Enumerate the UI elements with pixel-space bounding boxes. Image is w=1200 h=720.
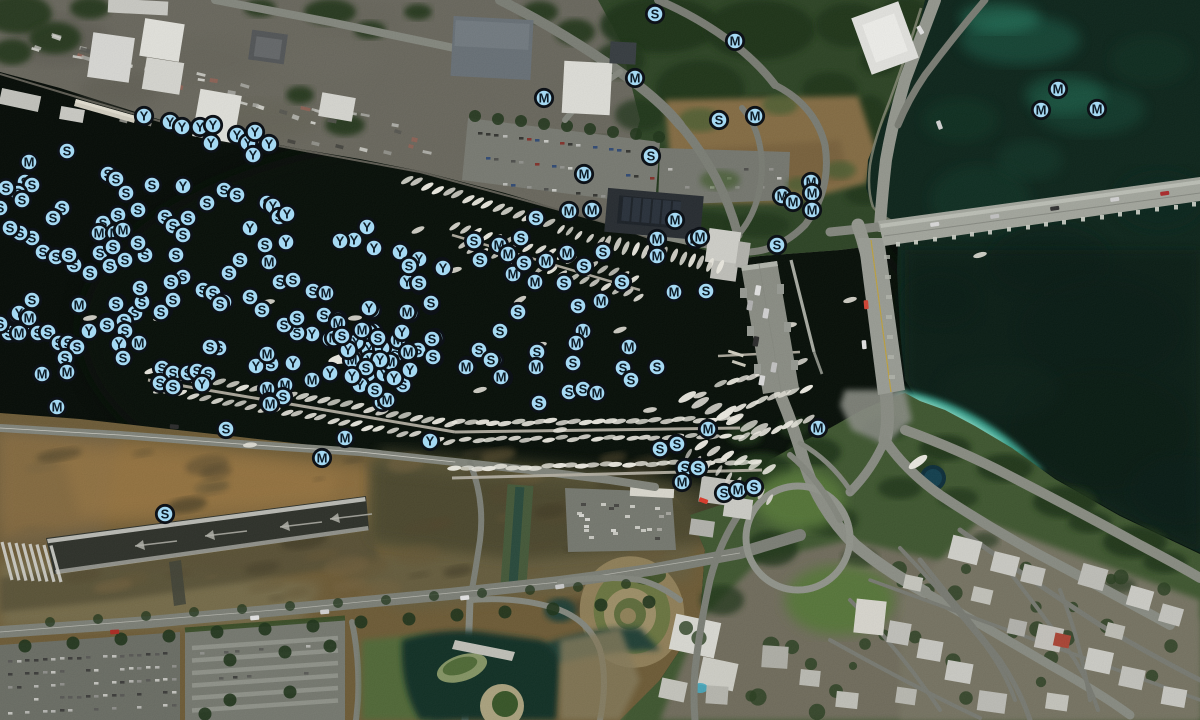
svg-text:Y: Y: [365, 301, 374, 316]
svg-text:S: S: [647, 149, 656, 164]
svg-text:S: S: [580, 259, 589, 274]
svg-text:Y: Y: [140, 109, 149, 124]
svg-text:M: M: [134, 336, 145, 351]
svg-text:S: S: [720, 486, 729, 501]
svg-text:M: M: [750, 109, 761, 124]
svg-text:M: M: [652, 249, 663, 264]
svg-text:Y: Y: [209, 118, 218, 133]
svg-text:M: M: [357, 323, 368, 338]
svg-text:M: M: [496, 370, 507, 385]
svg-text:Y: Y: [282, 235, 291, 250]
svg-text:S: S: [702, 284, 711, 299]
svg-text:S: S: [28, 178, 37, 193]
svg-text:Y: Y: [207, 136, 216, 151]
svg-text:M: M: [564, 204, 575, 219]
svg-text:S: S: [560, 276, 569, 291]
svg-text:M: M: [461, 360, 472, 375]
svg-text:S: S: [216, 297, 225, 312]
svg-text:M: M: [670, 213, 681, 228]
svg-text:S: S: [574, 299, 583, 314]
svg-text:M: M: [14, 326, 25, 341]
svg-text:M: M: [1036, 103, 1047, 118]
svg-text:M: M: [579, 167, 590, 182]
svg-text:S: S: [246, 290, 255, 305]
svg-text:M: M: [677, 475, 688, 490]
svg-text:S: S: [535, 396, 544, 411]
svg-text:S: S: [236, 253, 245, 268]
svg-text:M: M: [562, 246, 573, 261]
svg-text:Y: Y: [426, 434, 435, 449]
svg-text:S: S: [233, 188, 242, 203]
svg-text:S: S: [206, 340, 215, 355]
svg-text:Y: Y: [251, 125, 260, 140]
svg-text:S: S: [2, 181, 11, 196]
svg-text:S: S: [119, 351, 128, 366]
svg-text:Y: Y: [289, 356, 298, 371]
svg-text:S: S: [470, 234, 479, 249]
svg-text:S: S: [599, 245, 608, 260]
svg-text:M: M: [813, 421, 824, 436]
svg-text:Y: Y: [246, 221, 255, 236]
svg-text:M: M: [317, 451, 328, 466]
svg-text:S: S: [258, 303, 267, 318]
svg-text:M: M: [62, 365, 73, 380]
svg-text:S: S: [362, 361, 371, 376]
svg-text:S: S: [673, 437, 682, 452]
svg-text:S: S: [715, 113, 724, 128]
svg-text:S: S: [618, 275, 627, 290]
svg-text:M: M: [402, 305, 413, 320]
svg-text:Y: Y: [370, 241, 379, 256]
svg-text:S: S: [520, 256, 529, 271]
svg-text:S: S: [134, 203, 143, 218]
svg-text:S: S: [565, 385, 574, 400]
svg-text:S: S: [157, 305, 166, 320]
svg-text:Y: Y: [308, 327, 317, 342]
svg-text:S: S: [415, 276, 424, 291]
svg-text:Y: Y: [406, 363, 415, 378]
svg-text:M: M: [340, 431, 351, 446]
svg-text:M: M: [262, 347, 273, 362]
svg-text:S: S: [179, 228, 188, 243]
svg-text:S: S: [222, 422, 231, 437]
svg-text:S: S: [496, 324, 505, 339]
svg-text:Y: Y: [348, 369, 357, 384]
svg-text:S: S: [320, 308, 329, 323]
svg-text:M: M: [24, 311, 35, 326]
svg-text:S: S: [172, 248, 181, 263]
svg-text:S: S: [289, 273, 298, 288]
svg-text:S: S: [429, 350, 438, 365]
svg-text:S: S: [338, 329, 347, 344]
svg-text:S: S: [169, 293, 178, 308]
svg-text:S: S: [112, 172, 121, 187]
svg-text:M: M: [695, 230, 706, 245]
svg-text:S: S: [86, 266, 95, 281]
svg-text:M: M: [265, 397, 276, 412]
svg-text:M: M: [807, 186, 818, 201]
svg-text:S: S: [579, 382, 588, 397]
svg-text:S: S: [18, 193, 27, 208]
svg-text:Y: Y: [178, 120, 187, 135]
svg-text:S: S: [569, 356, 578, 371]
svg-text:M: M: [652, 232, 663, 247]
svg-text:Y: Y: [326, 366, 335, 381]
svg-text:S: S: [73, 340, 82, 355]
svg-text:M: M: [807, 203, 818, 218]
svg-text:M: M: [531, 360, 542, 375]
svg-text:S: S: [161, 507, 170, 522]
svg-text:Y: Y: [265, 137, 274, 152]
svg-text:S: S: [148, 178, 157, 193]
svg-text:S: S: [136, 281, 145, 296]
svg-text:S: S: [121, 253, 130, 268]
svg-text:S: S: [487, 353, 496, 368]
svg-text:S: S: [122, 186, 131, 201]
svg-text:M: M: [539, 91, 550, 106]
svg-text:M: M: [596, 294, 607, 309]
svg-text:S: S: [374, 331, 383, 346]
svg-text:S: S: [103, 318, 112, 333]
svg-text:M: M: [669, 285, 680, 300]
svg-text:Y: Y: [390, 371, 399, 386]
svg-text:S: S: [203, 196, 212, 211]
svg-text:S: S: [112, 297, 121, 312]
svg-text:S: S: [0, 201, 5, 216]
svg-text:S: S: [134, 236, 143, 251]
svg-text:Y: Y: [85, 324, 94, 339]
svg-text:S: S: [427, 296, 436, 311]
svg-text:S: S: [405, 259, 414, 274]
svg-text:S: S: [184, 211, 193, 226]
svg-text:M: M: [1053, 82, 1064, 97]
svg-text:M: M: [94, 226, 105, 241]
svg-text:S: S: [627, 373, 636, 388]
svg-text:Y: Y: [198, 377, 207, 392]
svg-text:S: S: [773, 238, 782, 253]
svg-text:S: S: [167, 275, 176, 290]
svg-text:M: M: [307, 373, 318, 388]
svg-text:M: M: [541, 254, 552, 269]
svg-text:Y: Y: [439, 261, 448, 276]
svg-text:S: S: [63, 144, 72, 159]
svg-text:M: M: [624, 340, 635, 355]
svg-text:M: M: [74, 298, 85, 313]
svg-text:M: M: [571, 336, 582, 351]
svg-text:S: S: [6, 221, 15, 236]
svg-text:M: M: [733, 483, 744, 498]
svg-text:M: M: [630, 71, 641, 86]
svg-text:M: M: [52, 400, 63, 415]
svg-text:M: M: [530, 275, 541, 290]
svg-text:M: M: [703, 422, 714, 437]
svg-text:Y: Y: [398, 325, 407, 340]
svg-text:S: S: [371, 383, 380, 398]
svg-text:Y: Y: [283, 207, 292, 222]
svg-text:M: M: [321, 286, 332, 301]
svg-text:M: M: [1092, 102, 1103, 117]
svg-text:M: M: [37, 367, 48, 382]
svg-text:S: S: [476, 253, 485, 268]
svg-text:M: M: [788, 195, 799, 210]
svg-text:M: M: [264, 255, 275, 270]
svg-text:M: M: [503, 247, 514, 262]
svg-text:Y: Y: [363, 220, 372, 235]
svg-text:S: S: [517, 231, 526, 246]
svg-text:S: S: [49, 211, 58, 226]
svg-text:Y: Y: [350, 233, 359, 248]
svg-text:S: S: [514, 305, 523, 320]
svg-text:S: S: [653, 360, 662, 375]
svg-text:S: S: [293, 311, 302, 326]
svg-text:S: S: [225, 266, 234, 281]
svg-text:S: S: [169, 380, 178, 395]
svg-text:S: S: [261, 238, 270, 253]
svg-text:S: S: [656, 442, 665, 457]
svg-text:M: M: [730, 34, 741, 49]
svg-text:S: S: [279, 390, 288, 405]
svg-text:Y: Y: [396, 245, 405, 260]
svg-text:M: M: [403, 345, 414, 360]
svg-text:S: S: [428, 332, 437, 347]
svg-text:S: S: [28, 293, 37, 308]
svg-text:Y: Y: [376, 353, 385, 368]
svg-text:M: M: [118, 223, 129, 238]
svg-text:M: M: [592, 386, 603, 401]
svg-text:S: S: [651, 7, 660, 22]
svg-text:Y: Y: [249, 148, 258, 163]
svg-text:M: M: [24, 155, 35, 170]
svg-text:S: S: [109, 240, 118, 255]
svg-text:Y: Y: [252, 359, 261, 374]
svg-text:S: S: [750, 480, 759, 495]
svg-text:Y: Y: [179, 179, 188, 194]
svg-text:M: M: [587, 203, 598, 218]
svg-text:S: S: [694, 461, 703, 476]
svg-text:S: S: [106, 259, 115, 274]
svg-text:S: S: [65, 248, 74, 263]
svg-text:S: S: [532, 211, 541, 226]
svg-text:S: S: [0, 317, 5, 332]
svg-text:Y: Y: [336, 234, 345, 249]
